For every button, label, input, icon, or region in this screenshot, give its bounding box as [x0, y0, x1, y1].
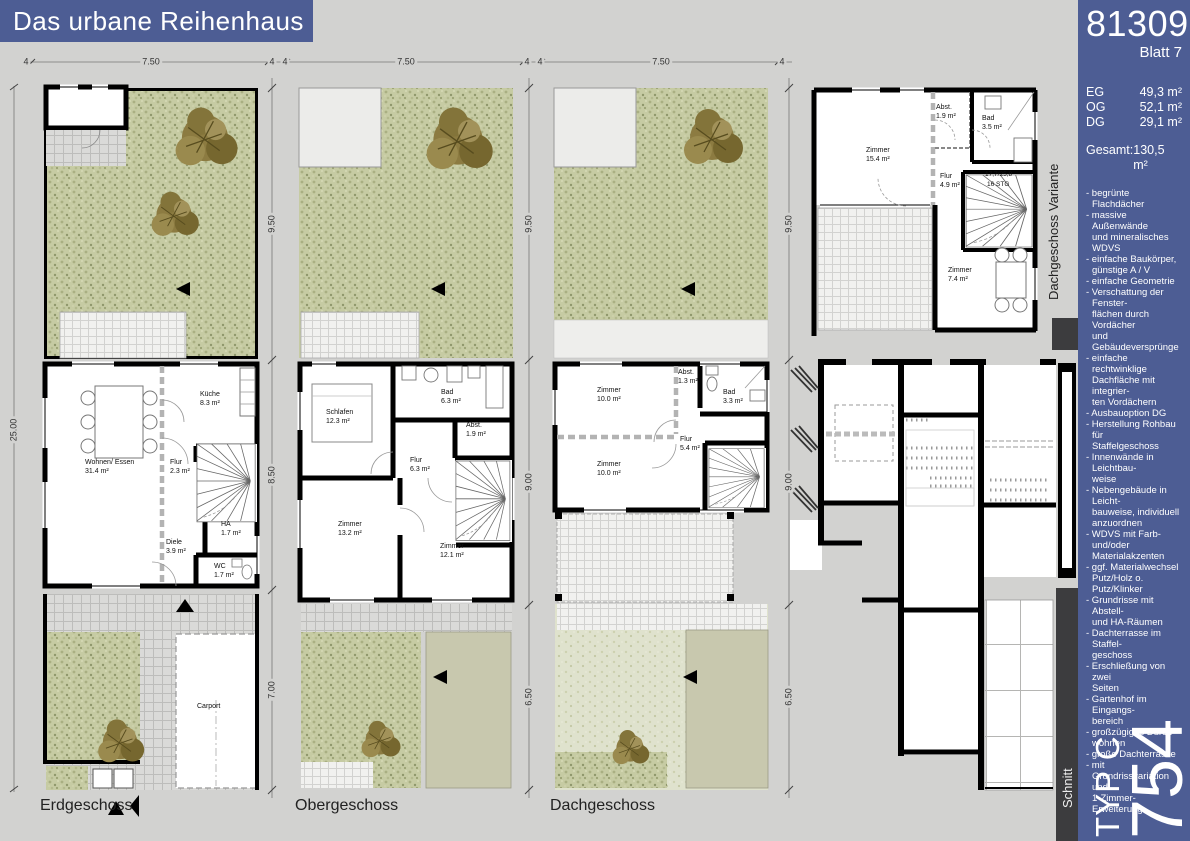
room-label-var-flur: Flur4.9 m²: [940, 172, 960, 191]
room-label-og-bad: Bad6.3 m²: [441, 388, 461, 407]
floor-label-dg: Dachgeschoss: [550, 797, 655, 815]
room-label-dg-bad: Bad3.3 m²: [723, 388, 743, 407]
dim-eg-left: 4: [21, 58, 30, 67]
plans-graphics: [0, 0, 1190, 841]
section-drawing: [790, 362, 1076, 790]
room-label-schlafen: Schlafen12.3 m²: [326, 408, 353, 427]
feature-item: - einfache Baukörper, günstige A / V: [1086, 254, 1182, 276]
feature-item: - einfache rechtwinklige Dachfläche mit …: [1086, 353, 1182, 408]
dim-og-width: 7.50: [395, 58, 417, 67]
plan-dg-variante: [814, 90, 1036, 336]
room-label-var-abst: Abst.1.9 m²: [936, 103, 956, 122]
stair-note-steps: 17,7/25,8: [985, 171, 1012, 178]
room-label-dg-flur: Flur5.4 m²: [680, 435, 700, 454]
feature-item: - Erschließung von zwei Seiten: [1086, 661, 1182, 694]
room-label-wc: WC1.7 m²: [214, 562, 234, 581]
dim-dg-right: 4: [777, 58, 786, 67]
floor-label-eg: Erdgeschoss: [40, 797, 133, 815]
feature-item: - Dachterrasse im Staffel- geschoss: [1086, 628, 1182, 661]
page-title: Das urbane Reihenhaus: [13, 6, 304, 37]
room-label-eg-flur: Flur2.3 m²: [170, 458, 190, 477]
feature-item: - Grundrisse mit Abstell- und HA-Räumen: [1086, 595, 1182, 628]
section-label: Schnitt: [1060, 768, 1075, 808]
room-label-og-zimmer1: Zimmer13.2 m²: [338, 520, 362, 539]
feature-item: - Herstellung Rohbau für Staffelgeschoss: [1086, 419, 1182, 452]
feature-item: - ggf. Materialwechsel Putz/Holz o. Putz…: [1086, 562, 1182, 595]
sidebar: 813098 Blatt 7 EG 49,3 m² OG 52,1 m² DG …: [1078, 0, 1190, 841]
title-bar: Das urbane Reihenhaus: [0, 0, 313, 42]
feature-item: - Innenwände in Leichtbau- weise: [1086, 452, 1182, 485]
dim-og-left: 4: [280, 58, 289, 67]
area-row-eg: EG 49,3 m²: [1086, 85, 1182, 100]
dim-eg-front: 7.00: [268, 679, 277, 701]
room-label-kueche: Küche8.3 m²: [200, 390, 220, 409]
room-label-var-zimmer2: Zimmer7.4 m²: [948, 266, 972, 285]
dim-eg-width: 7.50: [140, 58, 162, 67]
stair-note-count: 16 STG: [987, 181, 1009, 188]
floor-label-og: Obergeschoss: [295, 797, 398, 815]
room-label-var-bad: Bad3.5 m²: [982, 114, 1002, 133]
dim-dg-front: 6.50: [785, 686, 794, 708]
sheet-canvas: Das urbane Reihenhaus 4 7.50 4 4 7.50 4 …: [0, 0, 1190, 841]
room-label-var-zimmer1: Zimmer15.4 m²: [866, 146, 890, 165]
dim-dg-width: 7.50: [650, 58, 672, 67]
dim-dg-house: 9.00: [785, 471, 794, 493]
area-table: EG 49,3 m² OG 52,1 m² DG 29,1 m²: [1086, 85, 1182, 130]
feature-item: - massive Außenwände und mineralisches W…: [1086, 210, 1182, 254]
room-label-og-zimmer2: Zimmer12.1 m²: [440, 542, 464, 561]
variante-label: Dachgeschoss Variante: [1046, 164, 1061, 300]
room-label-diele: Diele3.9 m²: [166, 538, 186, 557]
type-number: 754: [1117, 719, 1190, 839]
feature-item: - WDVS mit Farb- und/oder Materialakzent…: [1086, 529, 1182, 562]
feature-item: - Verschattung der Fenster- flächen durc…: [1086, 287, 1182, 353]
dim-dg-left: 4: [535, 58, 544, 67]
room-label-dg-zimmer2: Zimmer10.0 m²: [597, 460, 621, 479]
room-label-carport: Carport: [197, 702, 220, 711]
feature-item: - Ausbauoption DG: [1086, 408, 1182, 419]
dim-og-right: 4: [522, 58, 531, 67]
area-total-row: Gesamt: 130,5 m²: [1086, 143, 1182, 173]
feature-item: - einfache Geometrie: [1086, 276, 1182, 287]
dim-og-front: 6.50: [525, 686, 534, 708]
dim-eg-garden: 9.50: [268, 213, 277, 235]
room-label-og-flur: Flur6.3 m²: [410, 456, 430, 475]
dim-og-garden: 9.50: [525, 213, 534, 235]
feature-item: - Nebengebäude in Leicht- bauweise, indi…: [1086, 485, 1182, 529]
area-row-dg: DG 29,1 m²: [1086, 115, 1182, 130]
room-label-og-abst: Abst.1.9 m²: [466, 421, 486, 440]
project-number: 813098: [1086, 4, 1182, 44]
room-label-dg-zimmer1: Zimmer10.0 m²: [597, 386, 621, 405]
room-label-ha: HA1.7 m²: [221, 520, 241, 539]
room-label-wohnen: Wohnen/ Essen31.4 m²: [85, 458, 134, 477]
room-label-dg-abst: Abst.1.3 m²: [678, 368, 698, 387]
feature-item: - begrünte Flachdächer: [1086, 188, 1182, 210]
plan-erdgeschoss: [44, 87, 258, 817]
area-row-og: OG 52,1 m²: [1086, 100, 1182, 115]
dim-og-house: 9.00: [525, 471, 534, 493]
sheet-number: Blatt 7: [1086, 44, 1182, 61]
dim-total-depth: 25.00: [10, 417, 19, 444]
dim-eg-house: 8.50: [268, 464, 277, 486]
plan-dachgeschoss: [554, 88, 768, 790]
dim-eg-right: 4: [267, 58, 276, 67]
dim-dg-garden: 9.50: [785, 213, 794, 235]
